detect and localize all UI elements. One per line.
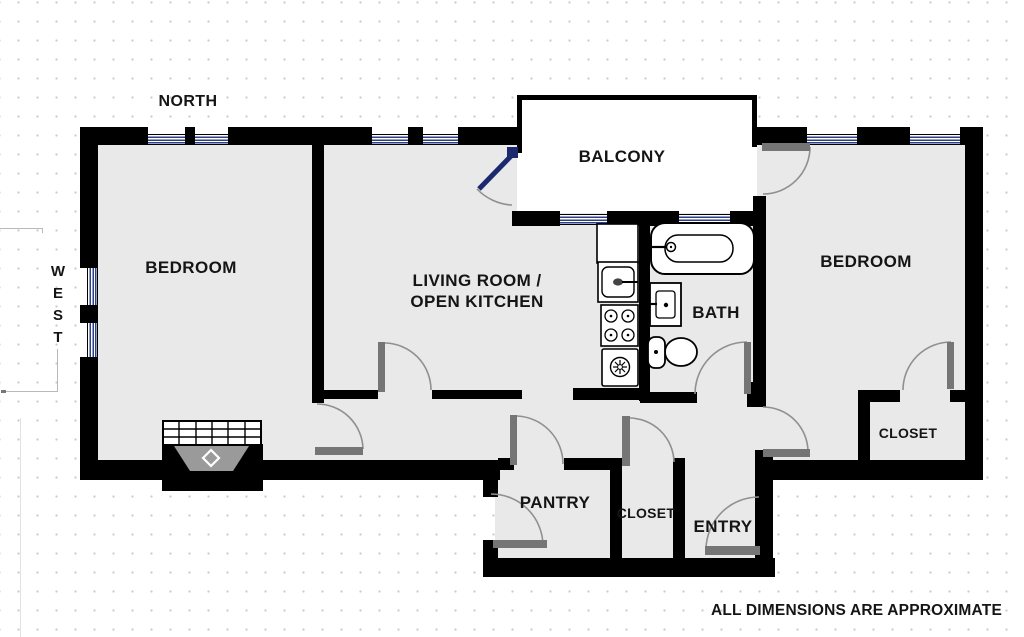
door-leaf [762, 143, 810, 151]
room-label-balcony: BALCONY [579, 147, 666, 167]
room-label-living-line1: LIVING ROOM / [413, 271, 542, 291]
kitchen-sink [598, 262, 638, 302]
door-leaf [763, 449, 810, 457]
door-leaf [378, 342, 385, 392]
door-leaf [622, 416, 630, 466]
room-label-living-line2: OPEN KITCHEN [410, 292, 543, 312]
room-label-bath: BATH [692, 303, 740, 323]
stove [601, 305, 638, 346]
toilet [648, 337, 697, 368]
compass-west-label: WEST [50, 263, 67, 351]
room-label-pantry: PANTRY [520, 493, 590, 513]
room-label-bedroom-right: BEDROOM [820, 252, 912, 272]
door-leaf [947, 342, 954, 389]
door-arcs [317, 147, 951, 549]
plan-overlay [0, 0, 1024, 637]
bathtub [651, 223, 754, 274]
room-label-entry: ENTRY [694, 517, 753, 537]
door-leaf [493, 540, 547, 548]
compass-north-label: NORTH [159, 93, 218, 111]
kitchen-counter [597, 224, 638, 263]
door-leaf [315, 447, 363, 455]
door-leaf [744, 342, 751, 394]
door-leaf [705, 546, 760, 555]
floor-plan: NORTH WEST BEDROOM LIVING ROOM / OPEN KI… [0, 0, 1024, 637]
dimensions-note: ALL DIMENSIONS ARE APPROXIMATE [711, 602, 1002, 620]
room-label-closet-right: CLOSET [879, 425, 938, 441]
room-label-bedroom-left: BEDROOM [145, 258, 237, 278]
bathroom-sink [650, 283, 681, 326]
fireplace-grate [163, 421, 261, 445]
dishwasher [602, 349, 638, 386]
door-leaf [510, 415, 517, 465]
fireplace [162, 421, 263, 491]
balcony-glass-door [479, 147, 518, 189]
room-label-closet-hall: CLOSET [617, 505, 676, 521]
